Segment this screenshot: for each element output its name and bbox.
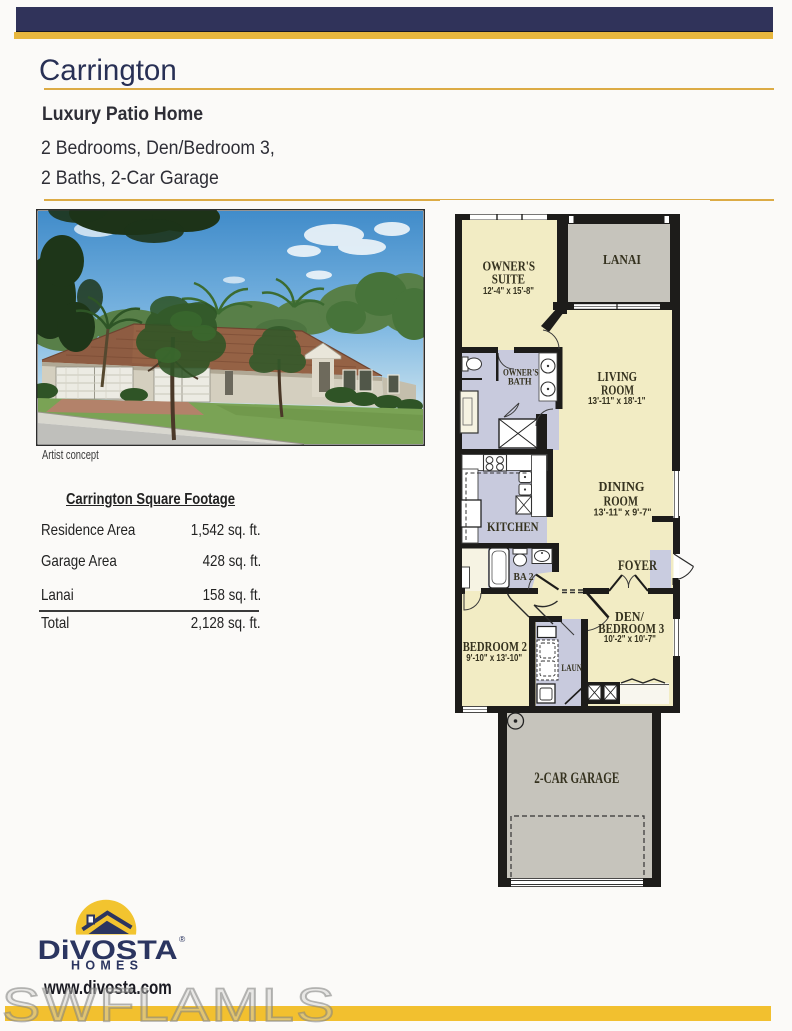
svg-text:13'-11" x 18'-1": 13'-11" x 18'-1" — [588, 396, 646, 407]
svg-text:2-CAR GARAGE: 2-CAR GARAGE — [534, 770, 619, 787]
svg-text:LANAI: LANAI — [603, 253, 641, 268]
svg-text:KITCHEN: KITCHEN — [487, 520, 539, 534]
svg-text:®: ® — [179, 934, 186, 944]
svg-text:12'-4" x 15'-8": 12'-4" x 15'-8" — [483, 286, 534, 297]
svg-text:9'-10" x 13'-10": 9'-10" x 13'-10" — [466, 653, 522, 664]
svg-text:13'-11" x 9'-7": 13'-11" x 9'-7" — [594, 508, 652, 519]
svg-text:BATH: BATH — [508, 378, 532, 388]
svg-text:BA 2: BA 2 — [514, 571, 534, 583]
svg-text:ROOM: ROOM — [604, 494, 639, 509]
svg-text:SUITE: SUITE — [492, 271, 525, 286]
svg-text:LIVING: LIVING — [598, 369, 638, 384]
svg-text:HOMES: HOMES — [71, 959, 143, 973]
svg-text:10'-2" x 10'-7": 10'-2" x 10'-7" — [604, 634, 656, 645]
svg-text:FOYER: FOYER — [618, 558, 657, 574]
svg-text:DINING: DINING — [599, 479, 645, 494]
svg-text:BEDROOM 2: BEDROOM 2 — [463, 639, 527, 654]
svg-text:LAUN: LAUN — [561, 664, 582, 674]
